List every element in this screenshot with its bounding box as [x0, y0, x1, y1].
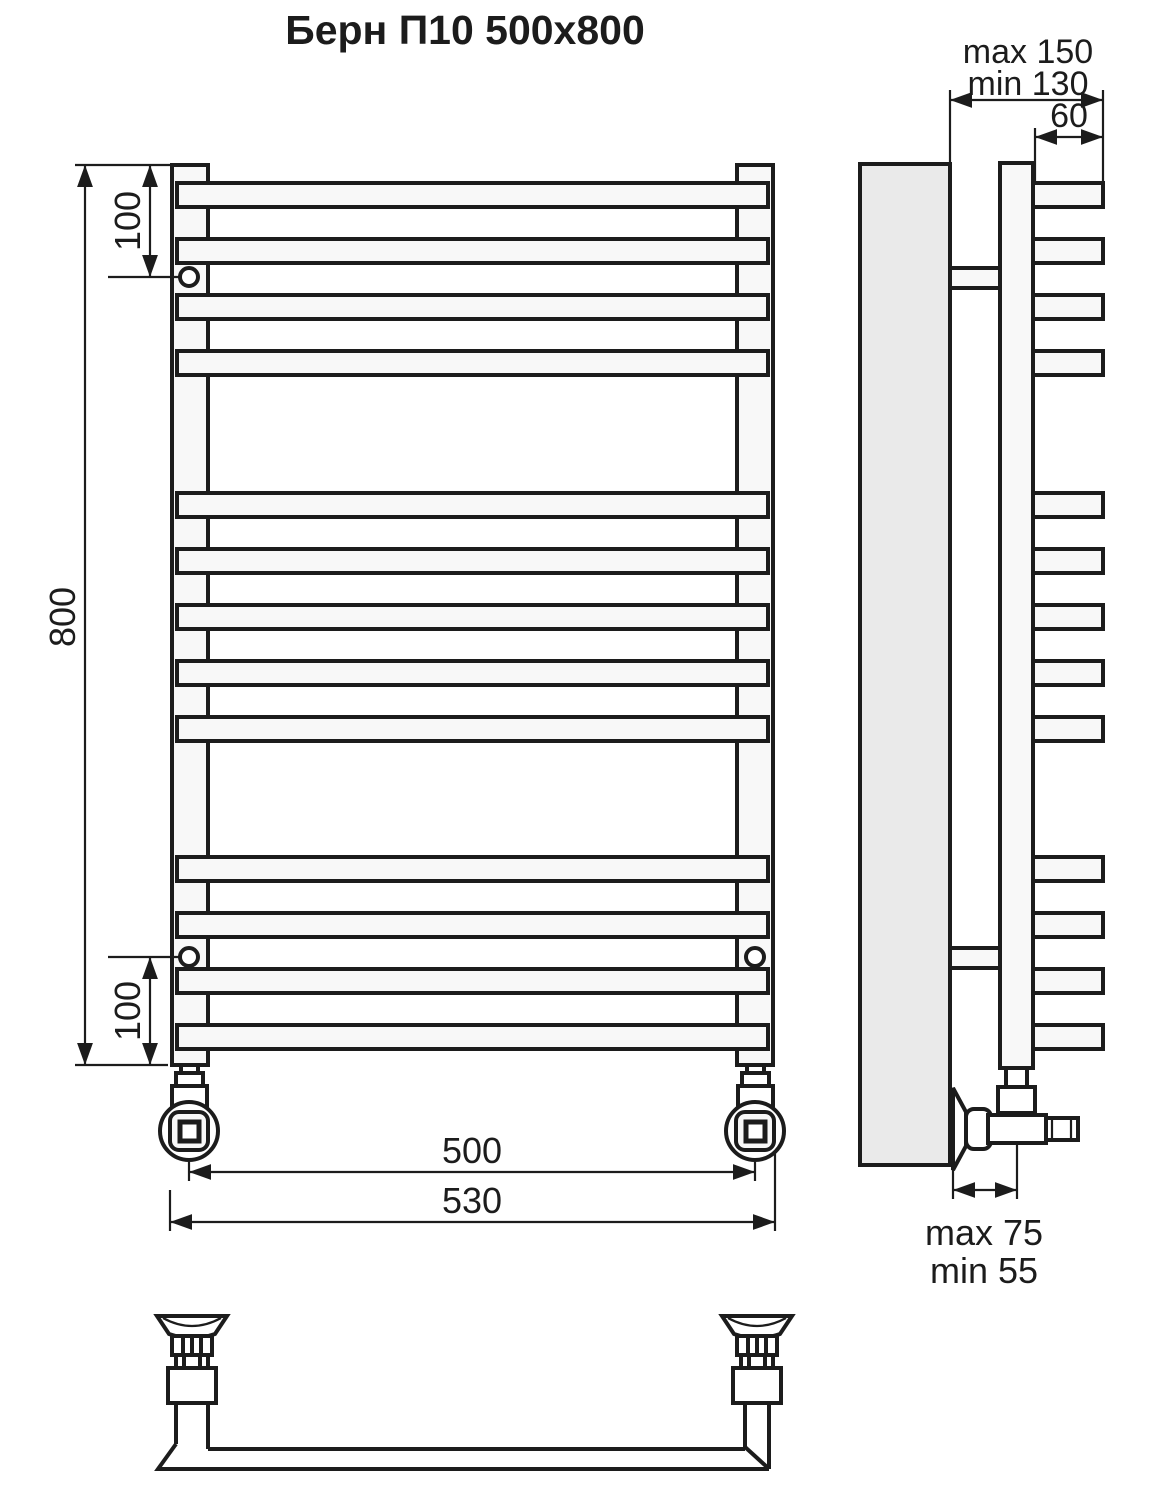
side-rail-pipe	[1000, 163, 1033, 1068]
rung	[177, 969, 768, 993]
rung	[177, 351, 768, 375]
rung	[177, 549, 768, 573]
rung	[177, 857, 768, 881]
mount-point-top-left	[180, 268, 198, 286]
bottom-left-fitting	[157, 1316, 227, 1449]
rung	[177, 605, 768, 629]
mount-point-bottom-right	[746, 948, 764, 966]
rung	[177, 717, 768, 741]
front-view: 100 800 100 500 530	[42, 165, 784, 1231]
bottom-right-fitting	[722, 1316, 792, 1469]
rung-end	[1033, 239, 1103, 263]
rung-end	[1033, 969, 1103, 993]
bracket-bottom	[950, 948, 1000, 968]
rung-end	[1033, 295, 1103, 319]
front-rungs	[177, 183, 768, 1049]
rung-end	[1033, 913, 1103, 937]
towel-rail-drawing: Берн П10 500x800	[0, 0, 1156, 1500]
front-right-valve	[726, 1065, 784, 1160]
rung	[177, 1025, 768, 1049]
dim-bottom-offset: 100	[107, 957, 179, 1065]
dim-label-500: 500	[442, 1130, 502, 1171]
rung-end	[1033, 351, 1103, 375]
rung-end	[1033, 717, 1103, 741]
rung	[177, 493, 768, 517]
dim-label-100-bottom: 100	[107, 981, 148, 1041]
dim-label-800: 800	[42, 587, 83, 647]
bottom-rung-tube	[158, 1444, 769, 1469]
rung	[177, 239, 768, 263]
technical-drawing-page: Берн П10 500x800	[0, 0, 1156, 1500]
rung	[177, 295, 768, 319]
dim-label-min55: min 55	[930, 1250, 1038, 1291]
rung-end	[1033, 183, 1103, 207]
mount-point-bottom-left	[180, 948, 198, 966]
rung-end	[1033, 661, 1103, 685]
dim-label-530: 530	[442, 1180, 502, 1221]
rung	[177, 913, 768, 937]
rung	[177, 183, 768, 207]
rung-end	[1033, 605, 1103, 629]
dim-rung-depth: 60	[1035, 97, 1103, 181]
drawing-title: Берн П10 500x800	[285, 7, 645, 53]
dim-label-100-top: 100	[107, 191, 148, 251]
rung-end	[1033, 493, 1103, 517]
bottom-view	[157, 1316, 792, 1469]
dim-height: 800	[42, 165, 168, 1065]
dim-label-60: 60	[1050, 97, 1088, 135]
dim-connection-spacing: 500	[189, 1130, 755, 1181]
dim-label-max75: max 75	[925, 1212, 1043, 1253]
front-left-valve	[160, 1065, 218, 1160]
rung-end	[1033, 1025, 1103, 1049]
rung	[177, 661, 768, 685]
rung-end	[1033, 857, 1103, 881]
bracket-top	[950, 268, 1000, 288]
wall-section	[860, 164, 950, 1165]
side-view: max 150 min 130 60 max 75 min 55	[860, 33, 1103, 1291]
side-valve-assembly	[953, 1068, 1078, 1170]
rung-end	[1033, 549, 1103, 573]
side-rung-ends	[1033, 183, 1103, 1049]
